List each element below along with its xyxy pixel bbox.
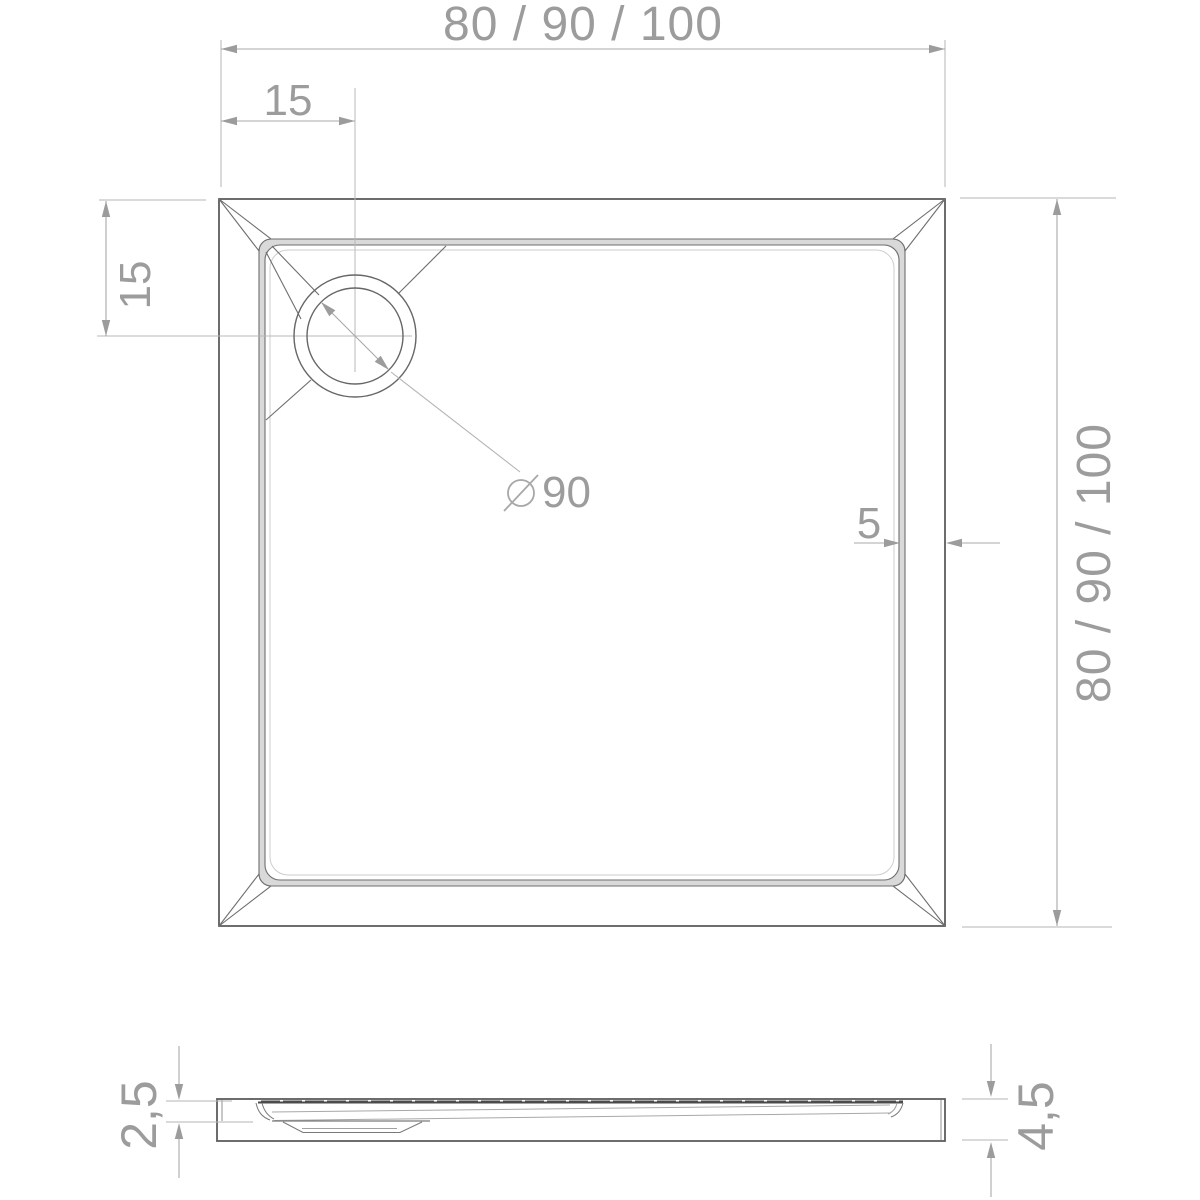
dimension-total-height: 4,5 <box>962 1044 1064 1197</box>
arrowhead-top <box>1053 199 1061 215</box>
arrowhead-up <box>987 1142 995 1158</box>
section-profile <box>217 1099 945 1141</box>
arrowhead-outer <box>946 539 962 547</box>
tray-rim-inner-edge <box>265 245 899 880</box>
dimension-label-drain-diameter: 90 <box>542 468 591 517</box>
arrowhead-top <box>102 201 110 217</box>
arrowhead-down <box>175 1084 183 1100</box>
arrowhead-left <box>221 45 237 53</box>
dimension-label-drain-offset-y: 15 <box>111 261 160 310</box>
section-view: 2,5 4,5 <box>111 1044 1064 1197</box>
arrowhead-bottom <box>102 320 110 336</box>
dimension-drain-offset-y: 15 <box>99 200 206 336</box>
dimension-label-total-height: 4,5 <box>1008 1081 1064 1151</box>
drawing-canvas: 80 / 90 / 100 15 15 80 / 90 / 100 <box>0 0 1200 1200</box>
arrowhead-right <box>339 117 355 125</box>
top-view: 80 / 90 / 100 15 15 80 / 90 / 100 <box>97 0 1121 927</box>
dimension-label-width-top: 80 / 90 / 100 <box>443 0 723 51</box>
technical-drawing: 80 / 90 / 100 15 15 80 / 90 / 100 <box>0 0 1200 1200</box>
dimension-label-drain-offset-x: 15 <box>264 76 313 125</box>
arrowhead-left <box>221 117 237 125</box>
arrowhead-up <box>175 1123 183 1139</box>
dimension-label-inner-depth: 2,5 <box>111 1080 167 1150</box>
dimension-depth-right: 80 / 90 / 100 <box>960 198 1121 927</box>
arrowhead-down <box>987 1081 995 1097</box>
dimension-width-top: 80 / 90 / 100 <box>221 0 945 187</box>
dimension-label-wall-thickness: 5 <box>857 499 881 548</box>
arrowhead-right <box>929 45 945 53</box>
dimension-drain-offset-x: 15 <box>221 76 355 125</box>
dimension-label-depth-right: 80 / 90 / 100 <box>1068 423 1121 703</box>
arrowhead-bottom <box>1053 910 1061 926</box>
